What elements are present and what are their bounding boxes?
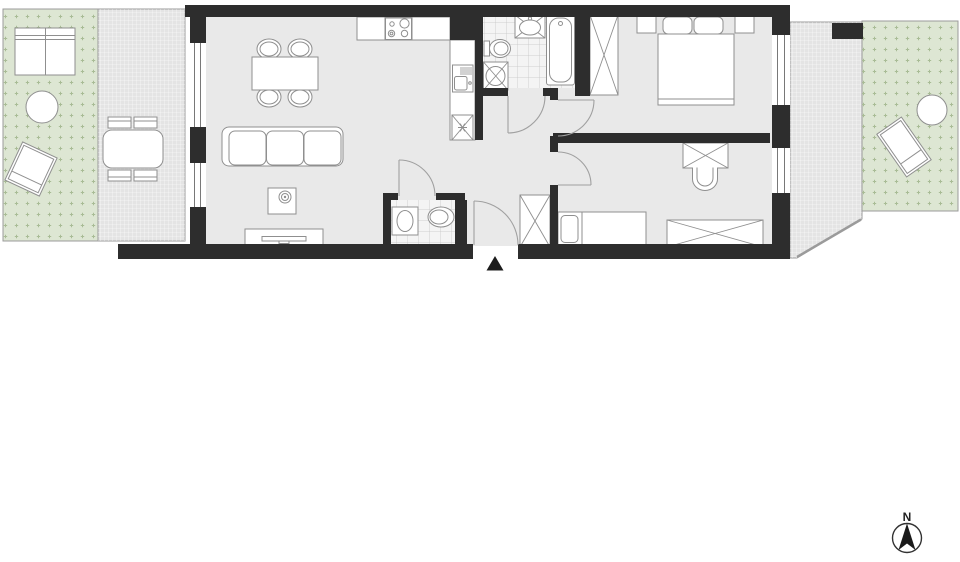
dining-table <box>252 57 318 90</box>
wall-bedroom-divider <box>553 133 770 143</box>
floor-plan-canvas: N <box>0 0 960 562</box>
hallway <box>520 195 550 247</box>
terrace-chair <box>108 117 131 128</box>
wall-wc-north-left <box>383 193 398 200</box>
terrace-chair <box>108 170 131 181</box>
double-bed <box>658 17 734 105</box>
tv-bench <box>245 229 323 246</box>
terrace-chair <box>134 170 157 181</box>
compass-north-arrow-icon <box>899 524 916 551</box>
single-bed <box>558 212 646 246</box>
wall-wc-west <box>383 193 391 247</box>
coffee-table <box>268 188 296 214</box>
terrace-right-grid <box>790 22 862 258</box>
desk-chair-icon <box>693 168 718 191</box>
outdoor-right <box>790 21 958 258</box>
round-table-left <box>26 91 58 123</box>
wall-kitchen-bathroom <box>475 17 483 140</box>
tv-icon <box>262 237 306 242</box>
pillow <box>561 216 578 243</box>
washbasin-icon <box>515 15 545 38</box>
floor-plan-page: N <box>0 0 960 562</box>
round-table-right <box>917 95 947 125</box>
wc-washbasin-icon <box>392 207 418 235</box>
wall-bathroom-south-left <box>478 88 508 96</box>
wall-bottom-left <box>118 244 473 259</box>
wall-hall-segment <box>550 185 558 245</box>
terrace-chair <box>134 117 157 128</box>
window-second-room <box>772 148 790 193</box>
wardrobe-icon <box>590 15 618 95</box>
pillow <box>694 17 723 34</box>
compass-north-label: N <box>903 510 912 524</box>
wall-bottom-right <box>518 244 790 259</box>
nightstand <box>637 15 656 33</box>
window-living-2 <box>190 163 206 207</box>
window-bedroom <box>772 35 790 105</box>
wall-wc-east <box>455 200 467 245</box>
wall-chimney <box>450 17 477 40</box>
dining-chair <box>288 39 312 59</box>
entrance-marker-icon <box>487 256 504 271</box>
dining-chair <box>257 39 281 59</box>
wc-toilet-icon <box>428 207 454 227</box>
outdoor-sofa <box>15 28 75 75</box>
nightstand <box>735 15 754 33</box>
toilet-icon <box>484 40 511 58</box>
desk-icon <box>683 143 728 168</box>
wall-wc-north-right <box>436 193 465 200</box>
wall-hall-segment <box>550 88 558 100</box>
wardrobe-icon <box>667 220 763 247</box>
sofa-three-seat <box>222 127 343 166</box>
bathtub-icon <box>547 15 575 85</box>
outdoor-left <box>3 9 185 241</box>
compass: N <box>893 510 922 553</box>
pillow <box>663 17 692 34</box>
window-living-1 <box>190 43 206 127</box>
hall-wardrobe-icon <box>520 195 550 247</box>
terrace-pillar <box>832 23 863 39</box>
wall-top <box>185 5 790 17</box>
washing-machine-icon <box>484 62 509 90</box>
wall-bathroom-east <box>575 8 590 96</box>
terrace-table <box>103 130 163 168</box>
